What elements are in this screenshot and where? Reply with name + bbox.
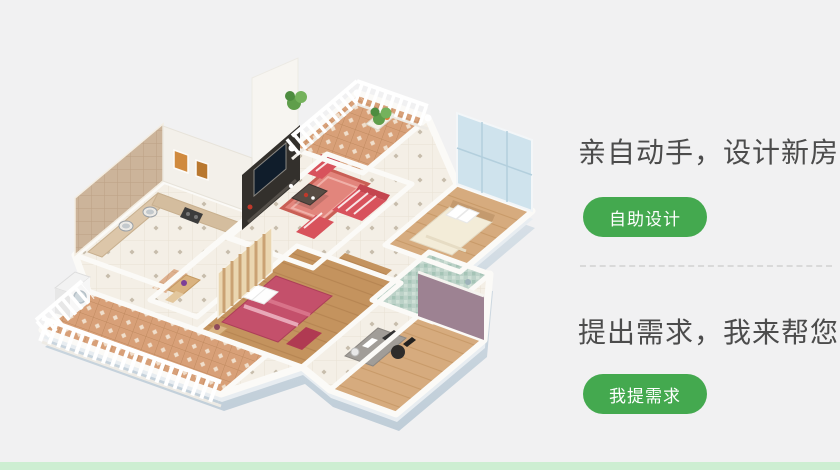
floorplan-image bbox=[25, 40, 540, 465]
footer-green-strip bbox=[0, 462, 840, 470]
self-design-button[interactable]: 自助设计 bbox=[583, 197, 707, 237]
section-title-diy: 亲自动手，设计新房 bbox=[578, 131, 839, 171]
promo-section: 亲自动手，设计新房 自助设计 提出需求，我来帮您 我提需求 bbox=[0, 0, 840, 470]
section-title-request: 提出需求，我来帮您 bbox=[578, 311, 839, 351]
art-frame bbox=[196, 160, 208, 180]
dashed-divider bbox=[580, 265, 832, 267]
submit-request-button[interactable]: 我提需求 bbox=[583, 374, 707, 414]
